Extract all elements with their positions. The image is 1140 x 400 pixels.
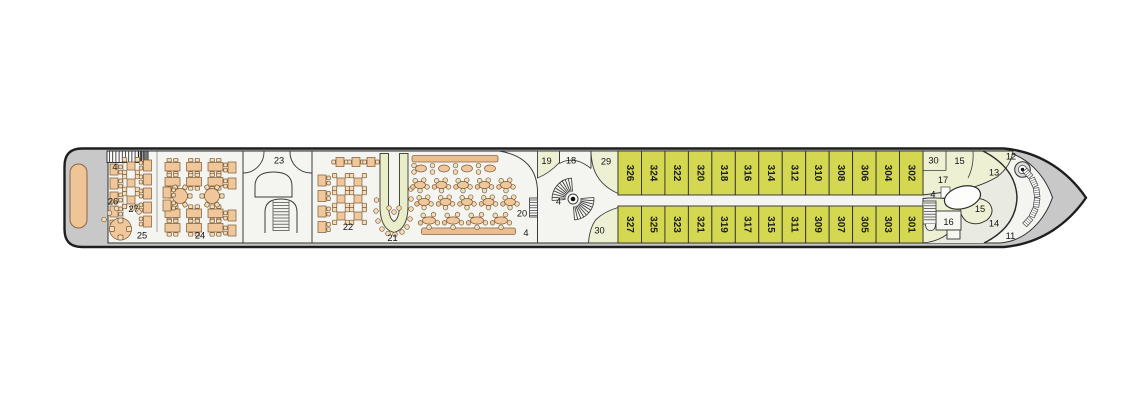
lounge-counter-top (412, 156, 498, 163)
elevator-icon (255, 172, 292, 197)
label-area-11: 11 (1006, 231, 1016, 241)
cabin-number-322: 322 (671, 165, 682, 182)
cabin-number-316: 316 (741, 165, 752, 182)
label-stairs-lounge: 4 (523, 228, 528, 238)
bar-stool-icon (405, 225, 410, 230)
cabin-number-327: 327 (624, 216, 635, 233)
cabin-number-320: 320 (694, 165, 705, 182)
lounge-stairs-icon (530, 198, 538, 217)
cabin-number-308: 308 (835, 165, 846, 182)
stern-platform-seat (70, 164, 87, 228)
cabin-number-303: 303 (882, 216, 893, 233)
bar-stool-icon (408, 217, 413, 222)
label-area-13: 13 (989, 168, 999, 178)
bar-stool-icon (400, 230, 405, 235)
cabin-number-314: 314 (765, 165, 776, 182)
cabin-number-301: 301 (906, 216, 917, 233)
label-area-27: 27 (128, 204, 138, 214)
cabin-number-305: 305 (859, 216, 870, 233)
cabin-number-319: 319 (718, 216, 729, 233)
label-stairs-atrium: 4 (556, 197, 561, 207)
cabin-number-309: 309 (812, 216, 823, 233)
cabin-number-310: 310 (812, 165, 823, 182)
label-area-21: 21 (387, 233, 397, 243)
bar-stool-icon (374, 209, 379, 214)
label-area-25: 25 (137, 231, 147, 241)
label-area-15-forward-top: 15 (954, 156, 964, 166)
bar-stool-icon (409, 197, 414, 202)
label-area-30-midship: 30 (594, 226, 604, 236)
round-table-icon (110, 218, 132, 240)
bar-stool-icon (102, 217, 107, 222)
bar-stool-icon (374, 198, 379, 203)
label-area-22: 22 (343, 222, 353, 232)
cabin-number-321: 321 (694, 216, 705, 233)
label-area-26: 26 (108, 197, 118, 207)
cabin-number-311: 311 (788, 216, 799, 233)
label-stairs-aft: 4 (112, 162, 117, 172)
stairway-icon (265, 199, 297, 233)
bar-stool-icon (122, 204, 127, 209)
bar-stool-icon (107, 211, 112, 216)
cabin-number-304: 304 (882, 165, 893, 182)
label-area-15-forward-mid: 15 (975, 204, 985, 214)
cabin-number-317: 317 (741, 216, 752, 233)
bar-stool-icon (387, 206, 392, 211)
cabin-number-306: 306 (859, 165, 870, 182)
bar-stool-icon (376, 219, 381, 224)
label-area-23: 23 (274, 156, 284, 166)
label-area-17: 17 (938, 175, 948, 185)
bar-stool-icon (114, 206, 119, 211)
label-stairs-bow: 4 (930, 190, 935, 200)
room-16-annex (947, 230, 960, 239)
label-area-12: 12 (1006, 152, 1016, 162)
label-area-14: 14 (989, 219, 999, 229)
label-area-29: 29 (601, 157, 611, 167)
label-area-30-forward: 30 (928, 156, 938, 166)
bar-stool-icon (380, 227, 385, 232)
label-area-20: 20 (517, 209, 527, 219)
sun-lounger-icon (1033, 188, 1040, 198)
deck-plan-page: 3263243223203183163143123103083063043023… (0, 0, 1140, 400)
cabin-number-315: 315 (765, 216, 776, 233)
cabin-number-325: 325 (648, 216, 659, 233)
cabin-number-323: 323 (671, 216, 682, 233)
cabin-number-324: 324 (648, 165, 659, 182)
bar-stool-icon (392, 210, 397, 215)
label-area-19: 19 (541, 156, 551, 166)
cabin-number-307: 307 (835, 216, 846, 233)
cabin-number-312: 312 (788, 165, 799, 182)
bar-stool-icon (397, 206, 402, 211)
sun-lounger-icon (1033, 198, 1040, 208)
cabin-number-302: 302 (906, 165, 917, 182)
label-area-18: 18 (566, 156, 576, 166)
label-area-16: 16 (943, 217, 953, 227)
cabin-number-326: 326 (624, 165, 635, 182)
label-area-24: 24 (195, 231, 205, 241)
bar-stool-icon (409, 207, 414, 212)
deck-plan-svg: 3263243223203183163143123103083063043023… (0, 0, 1140, 400)
cabin-number-318: 318 (718, 165, 729, 182)
